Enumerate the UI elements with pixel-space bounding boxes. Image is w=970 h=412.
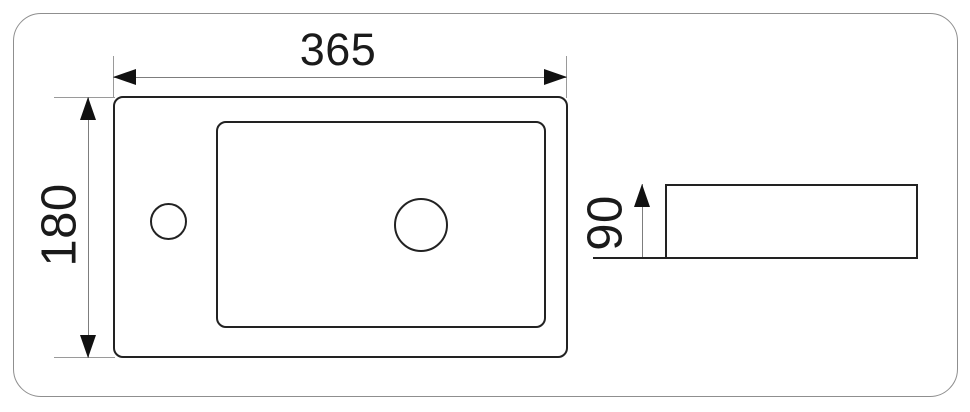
arrow-up-icon [80,97,96,120]
basin-bowl-outline [216,121,546,328]
faucet-hole [150,203,187,240]
dimension-line-height [88,97,89,358]
arrow-up-depth-icon [634,184,650,207]
drain-hole [394,198,448,252]
side-view-basin-outline [665,184,918,259]
dimension-line-width [113,77,567,78]
arrow-left-icon [113,69,136,85]
width-dimension-label: 365 [300,27,377,72]
side-view-baseline [593,257,667,260]
depth-dimension-label: 90 [582,195,631,251]
technical-drawing-canvas: 365 180 90 [0,0,970,412]
height-dimension-label: 180 [36,183,85,266]
arrow-right-icon [544,69,567,85]
arrow-down-icon [80,335,96,358]
